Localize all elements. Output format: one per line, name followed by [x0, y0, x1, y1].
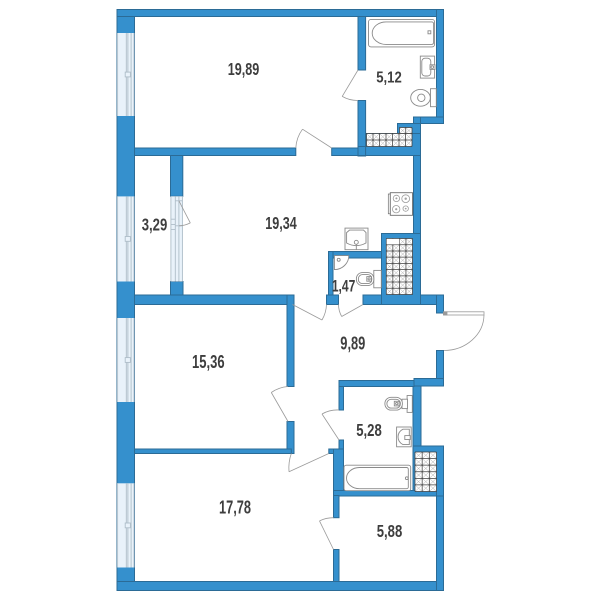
svg-text:5,88: 5,88 [377, 521, 403, 541]
svg-text:19,89: 19,89 [228, 59, 260, 79]
svg-text:1,47: 1,47 [332, 277, 356, 295]
svg-text:19,34: 19,34 [265, 213, 297, 233]
svg-text:3,29: 3,29 [142, 214, 168, 234]
svg-text:15,36: 15,36 [192, 352, 225, 372]
svg-text:5,12: 5,12 [376, 70, 402, 87]
svg-text:9,89: 9,89 [340, 333, 365, 353]
svg-text:5,28: 5,28 [356, 420, 382, 440]
svg-text:17,78: 17,78 [219, 498, 251, 518]
